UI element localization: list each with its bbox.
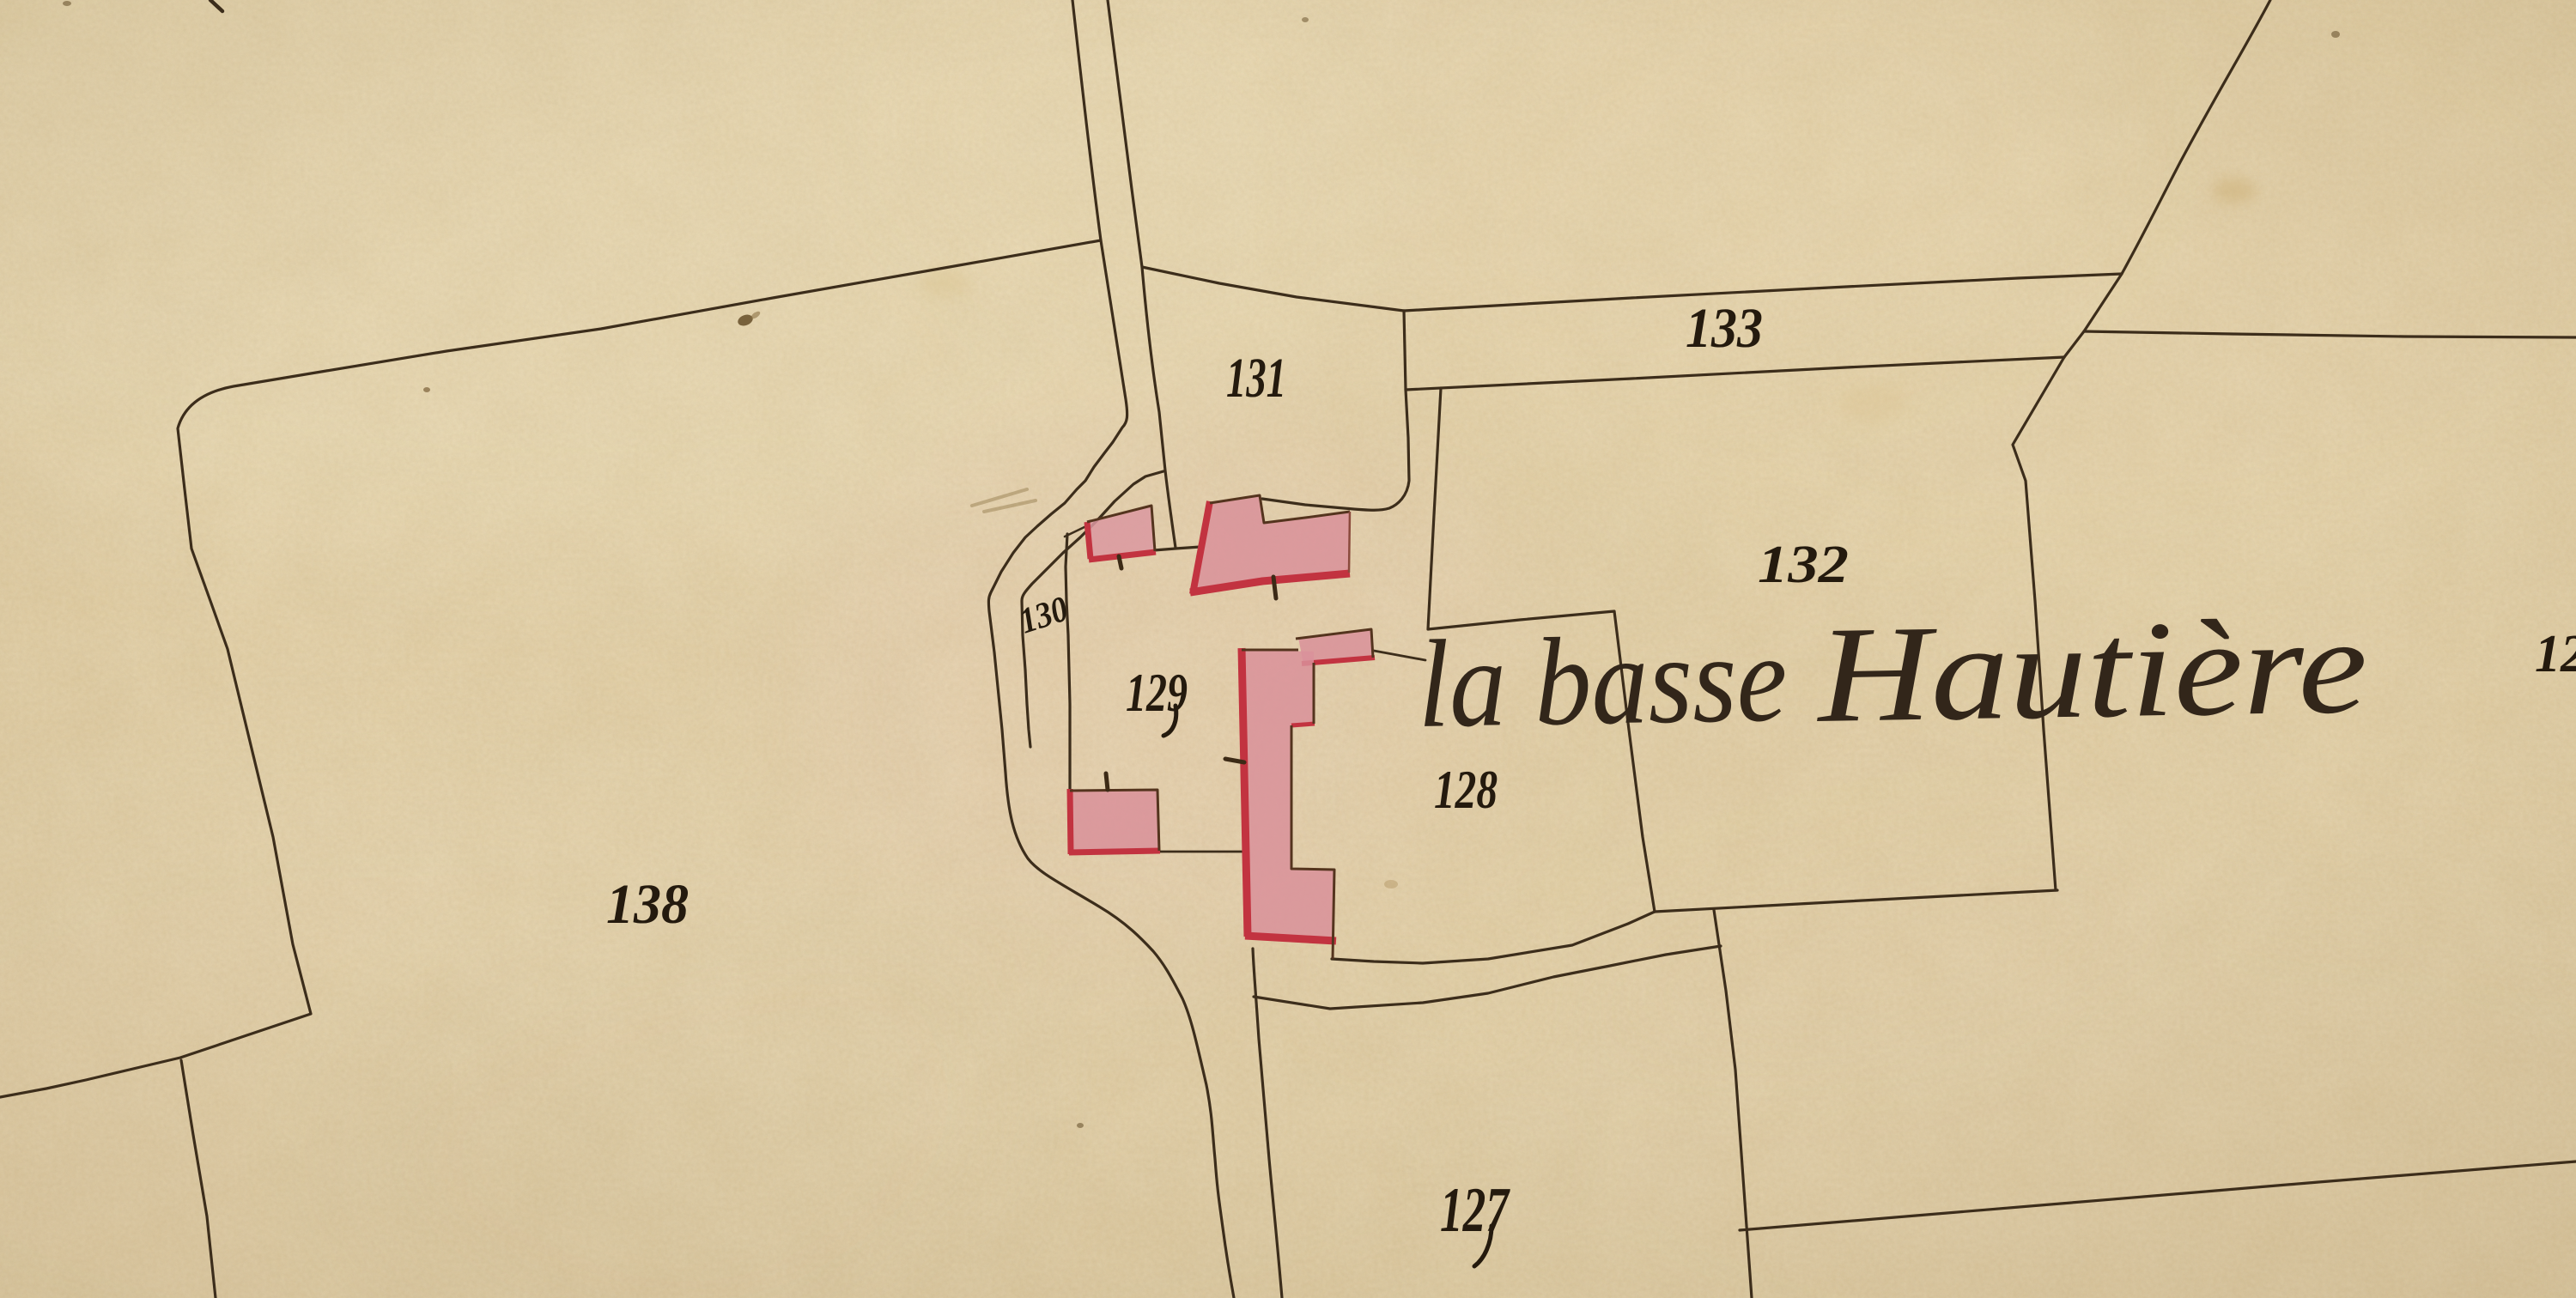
svg-text:la basse: la basse — [1417, 609, 1789, 754]
svg-text:138: 138 — [606, 873, 689, 936]
svg-text:128: 128 — [1434, 759, 1498, 820]
svg-text:133: 133 — [1686, 297, 1763, 360]
svg-text:127: 127 — [1440, 1175, 1510, 1246]
svg-text:131: 131 — [1226, 347, 1286, 409]
svg-text:12: 12 — [2535, 625, 2576, 683]
svg-text:Hautière: Hautière — [1814, 589, 2368, 751]
svg-text:132: 132 — [1758, 536, 1849, 594]
